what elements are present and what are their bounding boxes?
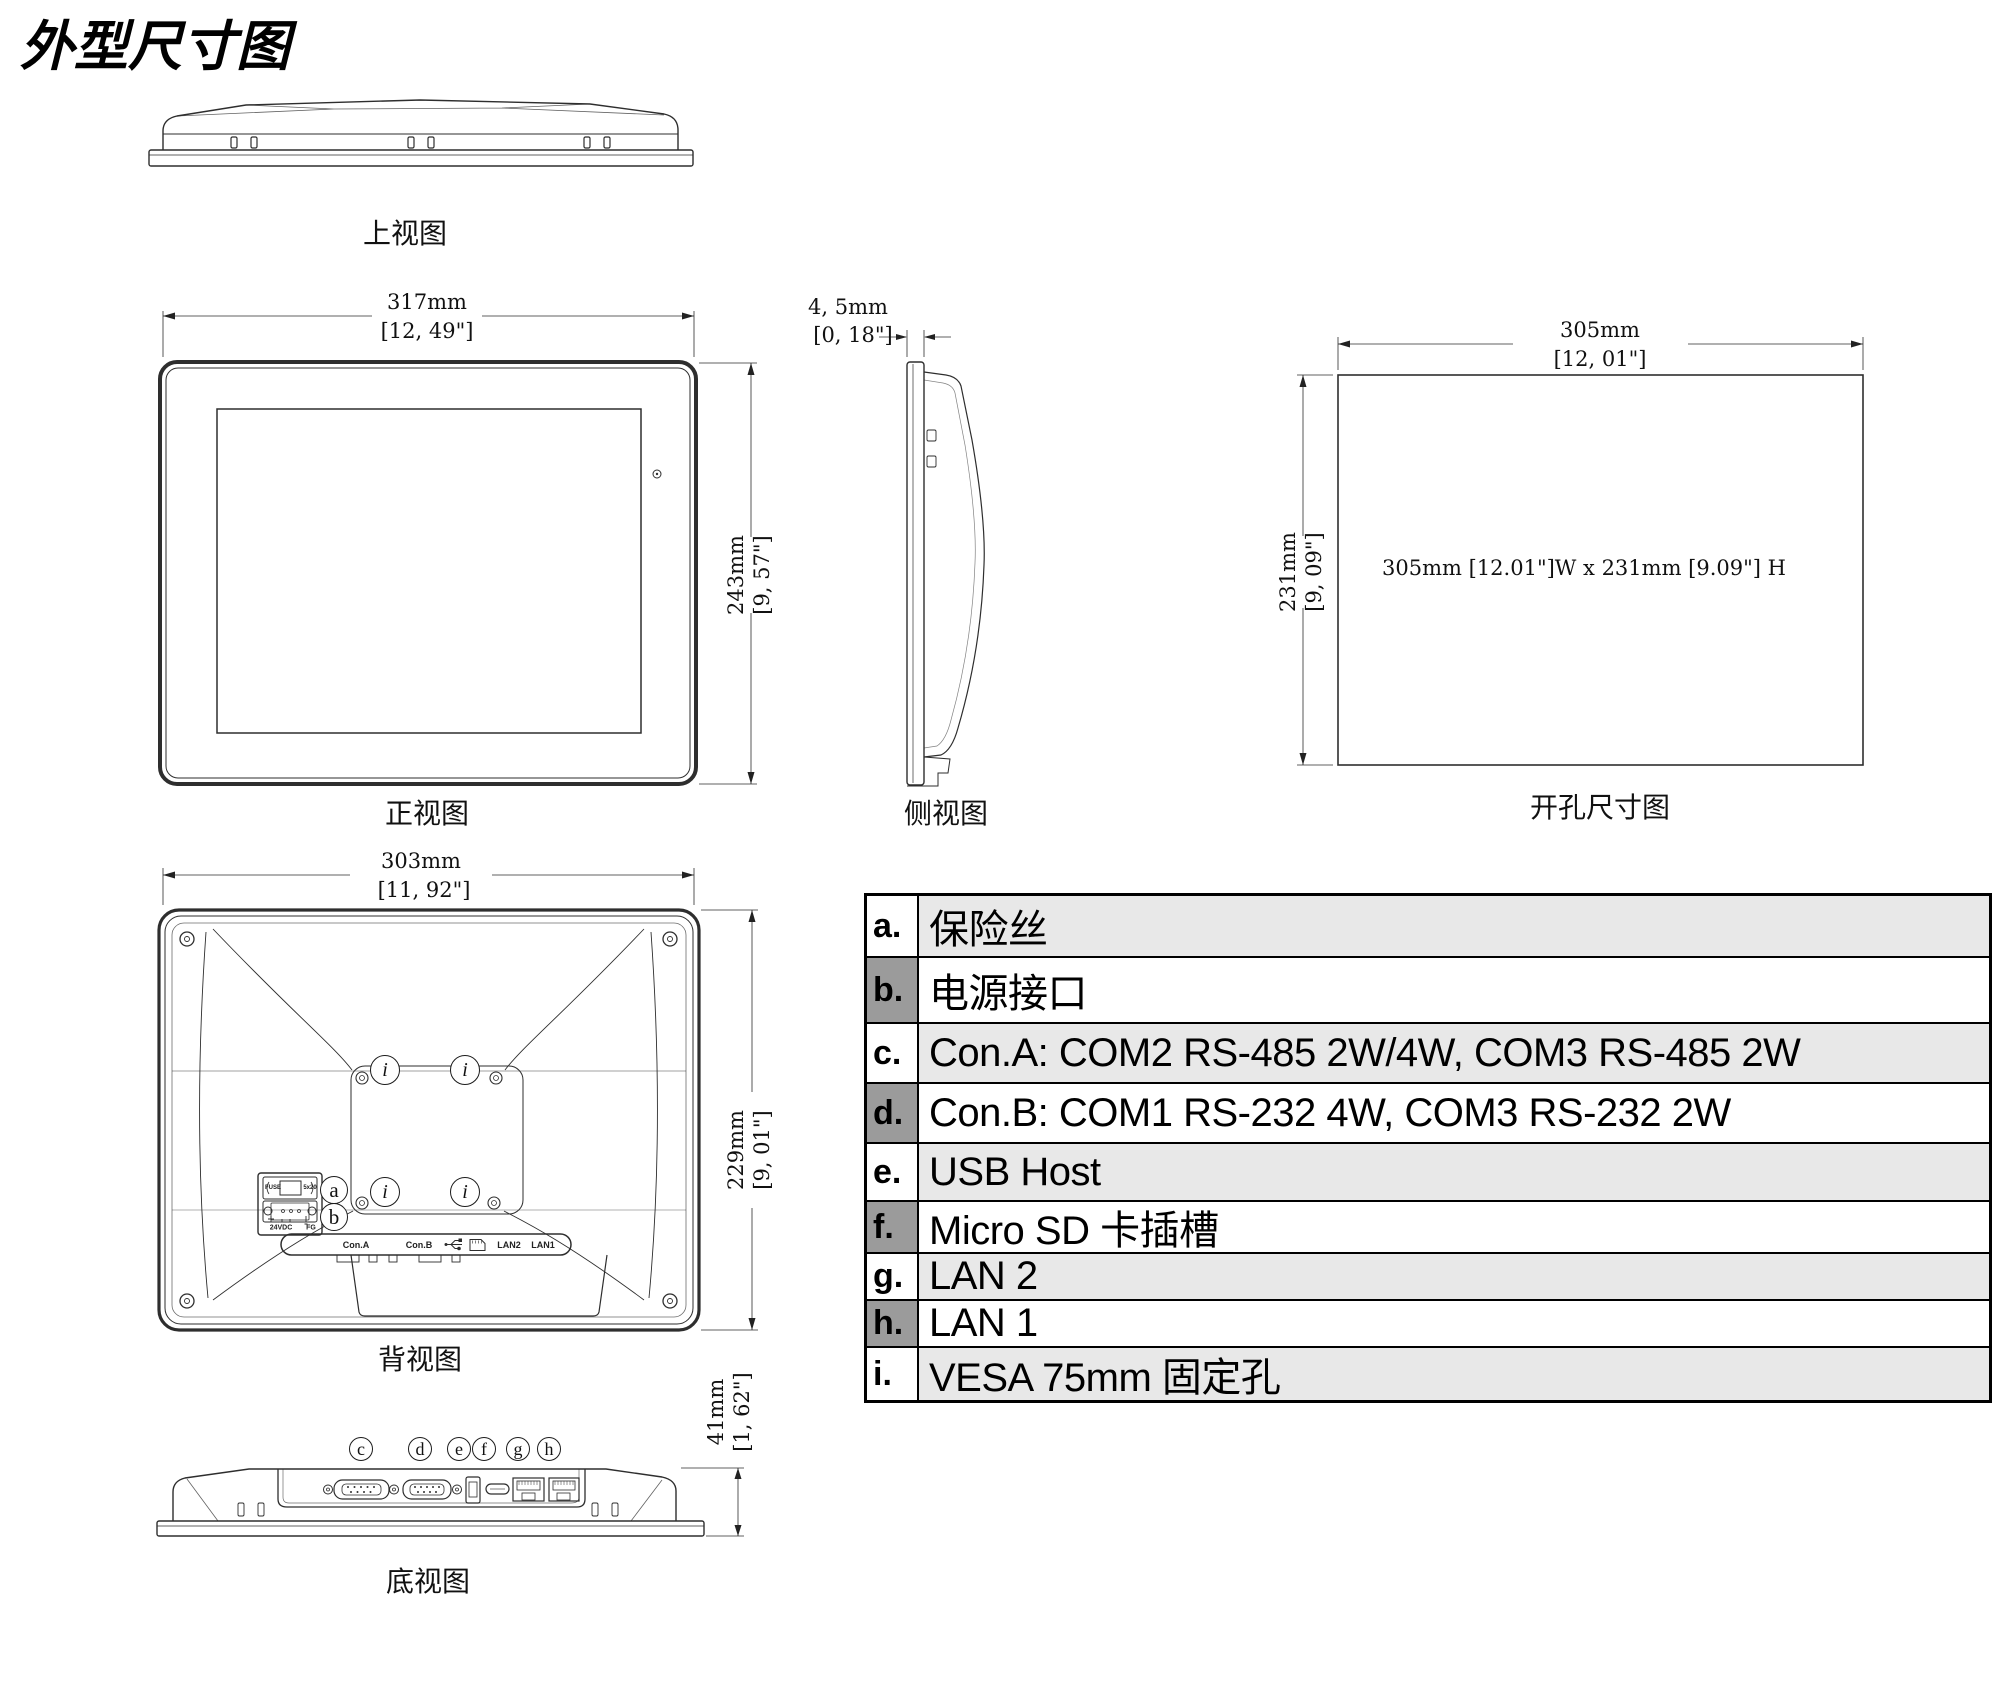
legend-key: a. [867,896,919,956]
strip-con-a-label: Con.A [343,1240,370,1250]
front-view-label: 正视图 [385,792,469,832]
micro-sd-slot [486,1484,509,1494]
page-title: 外型尺寸图 [20,2,290,81]
legend-key: g. [867,1254,919,1299]
callout-g: g [506,1437,530,1461]
cutout-width-inch: [12, 01"] [1554,347,1647,371]
legend-row-f: f. Micro SD 卡插槽 [867,1202,1989,1254]
front-width-mm: 317mm [387,290,467,314]
legend-text: USB Host [919,1144,1989,1200]
front-height-dim: 243mm [9, 57"] [723,535,776,615]
callout-b: b [320,1203,348,1231]
legend-row-d: d. Con.B: COM1 RS-232 4W, COM3 RS-232 2W [867,1084,1989,1144]
callout-i-top-right: i [450,1055,480,1085]
bottom-height-inch: [1, 62"] [729,1372,755,1451]
bottom-height-mm: 41mm [703,1372,729,1451]
rear-width-mm: 303mm [381,849,461,873]
side-depth-inch: [0, 18"] [813,323,892,347]
top-view-drawing [149,100,693,166]
legend-row-e: e. USB Host [867,1144,1989,1202]
strip-lan2-label: LAN2 [497,1240,521,1250]
callout-a: a [320,1176,348,1204]
technical-drawing [0,0,2000,1694]
power-voltage-label: 24VDC [270,1225,293,1232]
side-view-drawing [879,330,984,786]
side-depth-mm: 4, 5mm [808,295,888,319]
legend-text: 保险丝 [919,896,1989,956]
legend-key: f. [867,1202,919,1252]
front-width-inch: [12, 49"] [381,319,474,343]
db9-con-a [324,1480,399,1499]
front-height-mm: 243mm [723,535,749,615]
strip-con-b-label: Con.B [406,1240,433,1250]
lan1-port [549,1478,579,1501]
legend-text: Con.B: COM1 RS-232 4W, COM3 RS-232 2W [919,1084,1989,1142]
legend-table: a. 保险丝 b. 电源接口 c. Con.A: COM2 RS-485 2W/… [864,893,1992,1403]
dimension-drawing-page: 外型尺寸图 上视图 正视图 侧视图 开孔尺寸图 背视图 底视图 317mm [1… [0,0,2000,1694]
legend-row-b: b. 电源接口 [867,958,1989,1024]
callout-c: c [349,1437,373,1461]
legend-key: b. [867,958,919,1022]
legend-text: Con.A: COM2 RS-485 2W/4W, COM3 RS-485 2W [919,1024,1989,1082]
db9-con-b [403,1480,462,1499]
micro-sd-icon [470,1240,485,1251]
legend-text: 电源接口 [919,958,1989,1022]
top-view-label: 上视图 [363,212,447,252]
front-height-inch: [9, 57"] [749,535,775,615]
screen-area [217,409,641,733]
side-view-label: 侧视图 [904,792,988,832]
cutout-view-label: 开孔尺寸图 [1530,786,1670,826]
power-fg-label: FG [306,1225,316,1232]
callout-h: h [537,1437,561,1461]
rear-bottom-tray [337,1255,607,1316]
callout-i-top-left: i [370,1055,400,1085]
front-view-drawing [160,311,757,784]
legend-key: h. [867,1301,919,1346]
legend-key: i. [867,1348,919,1400]
legend-row-i: i. VESA 75mm 固定孔 [867,1348,1989,1400]
legend-row-a: a. 保险丝 [867,896,1989,958]
legend-text: Micro SD 卡插槽 [919,1202,1989,1252]
legend-row-c: c. Con.A: COM2 RS-485 2W/4W, COM3 RS-485… [867,1024,1989,1084]
rear-height-dim: 229mm [9, 01"] [723,1110,776,1190]
usb-icon [445,1239,463,1251]
rear-height-inch: [9, 01"] [749,1110,775,1190]
legend-row-h: h. LAN 1 [867,1301,1989,1348]
cutout-drawing [1297,337,1863,765]
bottom-view-label: 底视图 [386,1560,470,1600]
usb-port [466,1477,480,1503]
callout-d: d [408,1437,432,1461]
legend-text: LAN 2 [919,1254,1989,1299]
legend-text: VESA 75mm 固定孔 [919,1348,1989,1400]
rear-view-label: 背视图 [378,1338,462,1378]
bottom-view-drawing [157,1468,744,1536]
cutout-width-mm: 305mm [1560,318,1640,342]
corner-screws [180,932,677,1308]
legend-key: c. [867,1024,919,1082]
bottom-height-dim: 41mm [1, 62"] [703,1372,756,1451]
cutout-height-inch: [9, 09"] [1301,532,1327,612]
cutout-note: 305mm [12.01"]W x 231mm [9.09"] H [1382,556,1786,580]
legend-key: e. [867,1144,919,1200]
callout-e: e [447,1437,471,1461]
cutout-height-dim: 231mm [9, 09"] [1275,532,1328,612]
legend-text: LAN 1 [919,1301,1989,1346]
lan2-port [513,1478,544,1501]
legend-row-g: g. LAN 2 [867,1254,1989,1301]
legend-key: d. [867,1084,919,1142]
strip-lan1-label: LAN1 [531,1240,555,1250]
callout-i-bottom-left: i [370,1177,400,1207]
rear-view-drawing [159,868,758,1330]
callout-f: f [472,1437,496,1461]
fuse-label: FUSE [265,1185,281,1191]
fuse-size-label: 5x20 [303,1185,316,1191]
callout-i-bottom-right: i [450,1177,480,1207]
rear-height-mm: 229mm [723,1110,749,1190]
rear-width-inch: [11, 92"] [378,878,471,902]
cutout-height-mm: 231mm [1275,532,1301,612]
